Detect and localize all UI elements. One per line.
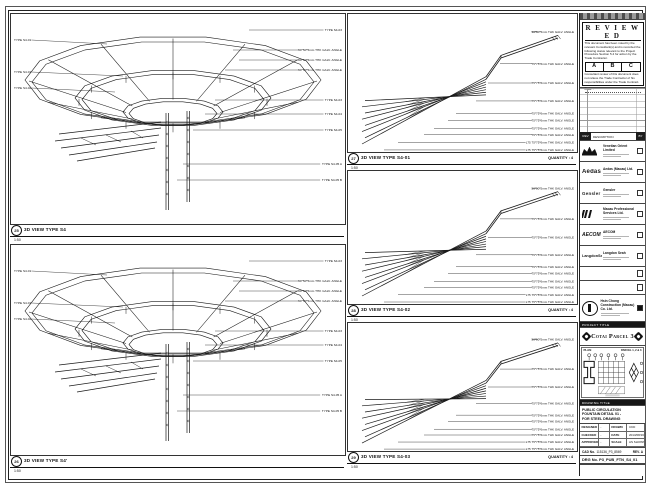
status-checkbox (637, 169, 644, 176)
project-title-row: Cotai Parcel 3 (580, 328, 645, 346)
quantity-note: QUANTITY : 4 (548, 156, 573, 160)
svg-text:75*75*6mm THK GALV. ANGLE: 75*75*6mm THK GALV. ANGLE (532, 253, 574, 257)
view-scale: 1:50 (14, 238, 21, 242)
svg-text:TYPE S4-04: TYPE S4-04 (325, 112, 342, 116)
caption-mid-top: 27 3D VIEW TYPE S4-01 QUANTITY : 4 1:50 (347, 153, 576, 170)
company-row-empty-2 (580, 281, 645, 295)
contractor-row: Hsin Chong Construction (Macau) Co. Ltd. (580, 295, 645, 322)
status-b: B (604, 63, 622, 71)
cad-number-row: CAD No. 115136_P3_8569 REV. A (580, 448, 645, 456)
viewport-3d-view-type-s4-prime: TYPE S4-0350*50*5mm THK GALV. ANGLE50*50… (10, 244, 346, 456)
svg-text:L75 75*75*6mm THK GALV. ANGLE: L75 75*75*6mm THK GALV. ANGLE (526, 440, 574, 444)
venetian-logo-icon (582, 147, 602, 156)
svg-text:TYPE S4-05: TYPE S4-05 (325, 128, 342, 132)
svg-text:50*50*5mm THK GALV. ANGLE: 50*50*5mm THK GALV. ANGLE (532, 30, 574, 34)
svg-text:75*75*6mm THK GALV. ANGLE: 75*75*6mm THK GALV. ANGLE (532, 367, 574, 371)
svg-text:TYPE S4-01: TYPE S4-01 (14, 38, 31, 42)
caption-underline (10, 236, 344, 238)
contractor-name: Hsin Chong Construction (Macau) Co. Ltd. (601, 300, 636, 311)
svg-text:75*75*6mm THK GALV. ANGLE: 75*75*6mm THK GALV. ANGLE (532, 62, 574, 66)
svg-text:50*50*5mm THK GALV. ANGLE: 50*50*5mm THK GALV. ANGLE (532, 338, 574, 342)
svg-text:50*50*5mm THK GALV. ANGLE: 50*50*5mm THK GALV. ANGLE (298, 68, 342, 72)
viewport-3d-view-type-s4-02: 50*50*5mm THK GALV. ANGLE75*75*6mm THK G… (347, 170, 578, 305)
cad-no-label: CAD No. (582, 450, 595, 454)
meinhardt-logo-icon (582, 210, 602, 218)
company-name: Gensler (603, 189, 636, 193)
project-title: Cotai Parcel 3 (591, 333, 634, 340)
drawn-label: DRAWN (610, 424, 628, 432)
designed-value: - (599, 424, 610, 432)
svg-text:75*75*6mm THK GALV. ANGLE: 75*75*6mm THK GALV. ANGLE (532, 402, 574, 406)
company-row-aedas: Aedas Aedas (Macau) Ltd. (580, 162, 645, 183)
revision-table-footer: REV DESCRIPTION BY (580, 132, 645, 140)
svg-text:TYPE S4-02: TYPE S4-02 (14, 86, 31, 90)
checked-value: - (599, 432, 610, 440)
detail-number: 27 (351, 156, 355, 161)
svg-text:75*75*6mm THK GALV. ANGLE: 75*75*6mm THK GALV. ANGLE (532, 433, 574, 437)
svg-text:75*75*6mm THK GALV. ANGLE: 75*75*6mm THK GALV. ANGLE (532, 285, 574, 289)
detail-number: 25 (14, 228, 18, 233)
caption-mid-bottom: 29 3D VIEW TYPE S4-03 QUANTITY : 4 1:50 (347, 452, 576, 469)
view-title: 3D VIEW TYPE S4 (24, 227, 66, 232)
svg-text:50*50*5mm THK GALV. ANGLE: 50*50*5mm THK GALV. ANGLE (298, 279, 342, 283)
svg-text:75*75*6mm THK GALV. ANGLE: 75*75*6mm THK GALV. ANGLE (532, 385, 574, 389)
quantity-note: QUANTITY : 4 (548, 455, 573, 459)
keyplan-grid-block (598, 361, 624, 383)
detail-bubble: 25 (11, 225, 22, 236)
svg-text:TYPE S4-02: TYPE S4-02 (14, 317, 31, 321)
caption-left-top: 25 3D VIEW TYPE S4 1:50 (10, 225, 344, 242)
svg-text:75*75*6mm THK GALV. ANGLE: 75*75*6mm THK GALV. ANGLE (532, 81, 574, 85)
status-checkbox (637, 148, 644, 155)
svg-text:75*75*6mm THK GALV. ANGLE: 75*75*6mm THK GALV. ANGLE (532, 217, 574, 221)
svg-text:TYPE S4-01: TYPE S4-01 (14, 70, 31, 74)
approved-label: APPROVED (580, 439, 599, 447)
company-row-empty-1 (580, 267, 645, 281)
svg-text:L75 75*75*6mm THK GALV. ANGLE: L75 75*75*6mm THK GALV. ANGLE (526, 148, 574, 152)
svg-text:TYPE S4-05 B: TYPE S4-05 B (322, 178, 342, 182)
svg-text:75*75*6mm THK GALV. ANGLE: 75*75*6mm THK GALV. ANGLE (532, 265, 574, 269)
view-scale: 1:50 (351, 465, 358, 469)
svg-text:75*75*6mm THK GALV. ANGLE: 75*75*6mm THK GALV. ANGLE (532, 118, 574, 122)
detail-number: 29 (351, 455, 355, 460)
status-a: A (586, 63, 604, 71)
detail-bubble: 29 (348, 452, 359, 463)
caption-underline (347, 463, 576, 465)
viewport-3d-view-type-s4: TYPE S4-0350*50*5mm THK GALV. ANGLE50*50… (10, 13, 346, 225)
checked-label: CHECKED (580, 432, 599, 440)
svg-text:L75 75*75*6mm THK GALV. ANGLE: L75 75*75*6mm THK GALV. ANGLE (526, 140, 574, 144)
gensler-logo: Gensler (582, 191, 602, 196)
keyplan-plan-label: PLAN (584, 348, 592, 352)
view-title: 3D VIEW TYPE S4-02 (361, 307, 410, 312)
svg-text:50*50*5mm THK GALV. ANGLE: 50*50*5mm THK GALV. ANGLE (298, 289, 342, 293)
svg-text:TYPE S4-05 A: TYPE S4-05 A (322, 393, 343, 397)
title-block-header-strip (580, 13, 645, 20)
view-scale: 1:50 (14, 469, 21, 473)
status-checkbox (637, 270, 644, 277)
viewport-3d-view-type-s4-03: 50*50*5mm THK GALV. ANGLE75*75*6mm THK G… (347, 322, 578, 452)
status-checkbox-filled (637, 305, 644, 312)
reviewed-title: R E V I E W E D (585, 24, 641, 42)
svg-text:TYPE S4-03: TYPE S4-03 (325, 329, 342, 333)
status-checkbox (637, 190, 644, 197)
caption-underline (10, 467, 344, 469)
status-checkbox (637, 284, 644, 291)
status-c: C (622, 63, 639, 71)
svg-text:TYPE S4-04: TYPE S4-04 (325, 343, 342, 347)
rev-label: REV. (633, 450, 640, 454)
3d-beam-bundle-drawing: 50*50*5mm THK GALV. ANGLE75*75*6mm THK G… (348, 14, 577, 152)
title-block-footer-strip (580, 464, 645, 465)
drawing-title: PUBLIC CIRCULATION FOUNTAIN DETAIL 01 - … (580, 406, 645, 424)
revision-table: REV DESCRIPTION BY (580, 88, 645, 141)
keyplan-right-bubbles (640, 362, 642, 383)
view-title: 3D VIEW TYPE S4-03 (361, 454, 410, 459)
svg-text:L75 75*75*6mm THK GALV. ANGLE: L75 75*75*6mm THK GALV. ANGLE (526, 293, 574, 297)
3d-beam-bundle-drawing: 50*50*5mm THK GALV. ANGLE75*75*6mm THK G… (348, 323, 577, 451)
detail-bubble: 26 (11, 456, 22, 467)
svg-text:75*75*6mm THK GALV. ANGLE: 75*75*6mm THK GALV. ANGLE (532, 272, 574, 276)
reviewed-note-2: Consultant review of this document does … (585, 73, 641, 84)
svg-text:TYPE S4-03: TYPE S4-03 (325, 259, 342, 263)
quantity-note: QUANTITY : 4 (548, 308, 573, 312)
drawing-sheet: TYPE S4-0350*50*5mm THK GALV. ANGLE50*50… (0, 0, 650, 488)
viewport-3d-view-type-s4-01: 50*50*5mm THK GALV. ANGLE75*75*6mm THK G… (347, 13, 578, 153)
company-name: Macau Professional Services Ltd. (603, 208, 636, 216)
svg-text:75*75*6mm THK GALV. ANGLE: 75*75*6mm THK GALV. ANGLE (532, 236, 574, 240)
svg-text:TYPE S4-03: TYPE S4-03 (325, 98, 342, 102)
company-row-gensler: Gensler Gensler (580, 183, 645, 204)
svg-text:50*50*5mm THK GALV. ANGLE: 50*50*5mm THK GALV. ANGLE (298, 299, 342, 303)
detail-number: 26 (14, 459, 18, 464)
reviewed-note-1: This document has been noted by the rele… (585, 42, 641, 61)
company-name: Langdon Seah (603, 252, 636, 256)
rev-col-label: REV (580, 132, 591, 140)
by-col-label: BY (636, 132, 645, 140)
keyplan-star-building (629, 363, 638, 381)
company-name: Venetian Orient Limited (603, 145, 636, 153)
drawn-value: CKD (627, 424, 645, 432)
drawing-title-line-3: FOR STEEL DRAWING (582, 417, 643, 422)
date-value: 2013/08/16 (627, 432, 645, 440)
ornament-icon (634, 332, 644, 342)
review-status-row: A B C (585, 62, 641, 72)
svg-text:L75 75*75*6mm THK GALV. ANGLE: L75 75*75*6mm THK GALV. ANGLE (526, 300, 574, 304)
svg-text:TYPE S4-05 B: TYPE S4-05 B (322, 409, 342, 413)
svg-text:75*75*6mm THK GALV. ANGLE: 75*75*6mm THK GALV. ANGLE (532, 99, 574, 103)
keyplan-hatch-band (598, 387, 624, 394)
keyplan-grid-bubbles (588, 354, 624, 361)
detail-number: 28 (351, 308, 355, 313)
scale-value: AS SHOWN (627, 439, 645, 447)
caption-mid-mid: 28 3D VIEW TYPE S4-02 QUANTITY : 4 1:50 (347, 305, 576, 322)
company-name: Aedas (Macau) Ltd. (603, 168, 636, 172)
detail-bubble: 28 (348, 305, 359, 316)
3d-radial-structure-drawing: TYPE S4-0350*50*5mm THK GALV. ANGLE50*50… (11, 245, 345, 455)
svg-text:TYPE S4-03: TYPE S4-03 (325, 28, 342, 32)
keyplan-legend-bar (605, 394, 619, 396)
approved-value: - (599, 439, 610, 447)
date-label: DATE (610, 432, 628, 440)
company-row-aecom: AECOM AECOM (580, 225, 645, 246)
company-row-venetian: Venetian Orient Limited (580, 141, 645, 162)
status-checkbox (637, 211, 644, 218)
contractor-emblem-icon (582, 301, 598, 316)
status-checkbox (637, 232, 644, 239)
signature-fields: DESIGNED-DRAWNCKD CHECKED-DATE2013/08/16… (580, 424, 645, 448)
svg-text:L75 75*75*6mm THK GALV. ANGLE: L75 75*75*6mm THK GALV. ANGLE (526, 447, 574, 451)
langdon-seah-logo: LangdonSeah (582, 254, 602, 258)
svg-text:75*75*6mm THK GALV. ANGLE: 75*75*6mm THK GALV. ANGLE (532, 420, 574, 424)
svg-text:75*75*6mm THK GALV. ANGLE: 75*75*6mm THK GALV. ANGLE (532, 133, 574, 137)
key-plan: PLAN PARCEL 1, 2 & 3 (580, 346, 645, 400)
aedas-logo: Aedas (582, 169, 602, 175)
drg-no-value: P3_PUB_FTN_S4_01 (599, 457, 637, 462)
keyplan-parcel-label: PARCEL 1, 2 & 3 (621, 348, 642, 352)
title-block: R E V I E W E D This document has been n… (579, 13, 645, 476)
svg-text:TYPE S4-05: TYPE S4-05 (325, 359, 342, 363)
svg-text:75*75*6mm THK GALV. ANGLE: 75*75*6mm THK GALV. ANGLE (532, 111, 574, 115)
3d-radial-structure-drawing: TYPE S4-0350*50*5mm THK GALV. ANGLE50*50… (11, 14, 345, 224)
reviewed-stamp: R E V I E W E D This document has been n… (580, 20, 645, 88)
3d-beam-bundle-drawing: 50*50*5mm THK GALV. ANGLE75*75*6mm THK G… (348, 171, 577, 304)
company-row-langdon-seah: LangdonSeah Langdon Seah (580, 246, 645, 267)
scale-label: SCALE (610, 439, 628, 447)
cad-no-value: 115136_P3_8569 (596, 450, 621, 454)
status-checkbox (637, 253, 644, 260)
svg-text:75*75*6mm THK GALV. ANGLE: 75*75*6mm THK GALV. ANGLE (532, 427, 574, 431)
svg-text:50*50*5mm THK GALV. ANGLE: 50*50*5mm THK GALV. ANGLE (298, 48, 342, 52)
view-title: 3D VIEW TYPE S4-01 (361, 155, 410, 160)
description-col-label: DESCRIPTION (591, 132, 636, 140)
company-row-mps: Macau Professional Services Ltd. (580, 204, 645, 225)
drg-no-label: DRG No. (582, 457, 598, 462)
caption-underline (347, 316, 576, 318)
aecom-logo: AECOM (582, 232, 602, 238)
ornament-icon (581, 332, 591, 342)
keyplan-building-i (584, 361, 594, 383)
svg-text:75*75*6mm THK GALV. ANGLE: 75*75*6mm THK GALV. ANGLE (532, 279, 574, 283)
company-name: AECOM (603, 231, 636, 235)
svg-text:TYPE S4-01: TYPE S4-01 (14, 269, 31, 273)
svg-text:50*50*5mm THK GALV. ANGLE: 50*50*5mm THK GALV. ANGLE (298, 58, 342, 62)
rev-value: A (641, 450, 643, 454)
svg-text:TYPE S4-05 A: TYPE S4-05 A (322, 162, 343, 166)
designed-label: DESIGNED (580, 424, 599, 432)
detail-bubble: 27 (348, 153, 359, 164)
drg-number-row: DRG No. P3_PUB_FTN_S4_01 (580, 456, 645, 464)
svg-text:75*75*6mm THK GALV. ANGLE: 75*75*6mm THK GALV. ANGLE (532, 127, 574, 131)
caption-left-bottom: 26 3D VIEW TYPE S4' 1:50 (10, 456, 344, 473)
svg-text:75*75*6mm THK GALV. ANGLE: 75*75*6mm THK GALV. ANGLE (532, 413, 574, 417)
view-title: 3D VIEW TYPE S4' (24, 458, 67, 463)
caption-underline (347, 164, 576, 166)
svg-text:50*50*5mm THK GALV. ANGLE: 50*50*5mm THK GALV. ANGLE (532, 186, 574, 190)
svg-text:TYPE S4-01: TYPE S4-01 (14, 301, 31, 305)
